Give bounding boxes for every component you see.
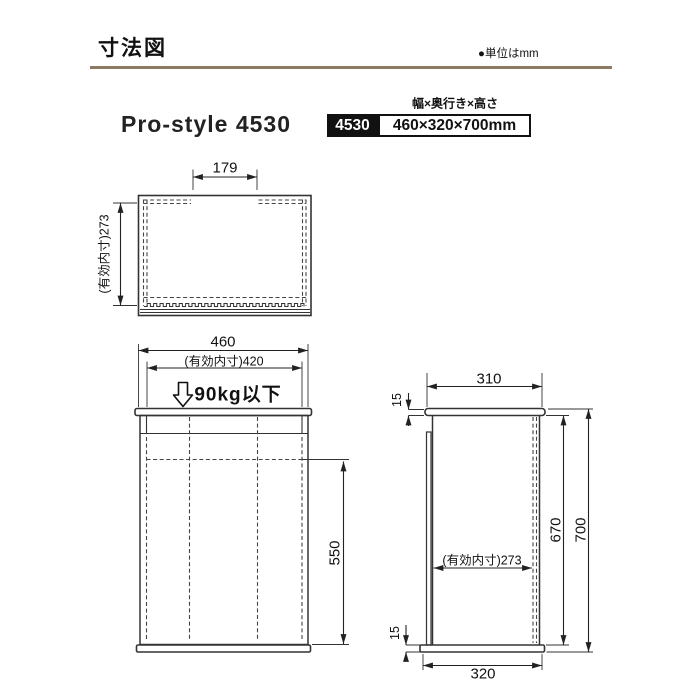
size-value: 460×320×700mm <box>378 114 531 137</box>
front-view-inner-height-label: 550 <box>327 540 344 565</box>
spec-table-header: 幅×奥行き×高さ <box>412 95 498 112</box>
front-view-inner-width-label: (有効内寸)420 <box>184 351 263 370</box>
product-name: Pro-style 4530 <box>121 111 291 138</box>
top-view-inner-depth-label: (有効内寸)273 <box>94 214 113 293</box>
front-view-load-label: 90kg以下 <box>194 380 281 407</box>
down-arrow-icon <box>174 383 193 407</box>
side-view-base-width-label: 320 <box>470 666 495 683</box>
side-view-inner-depth-label: (有効内寸)273 <box>442 550 521 569</box>
page-title: 寸法図 <box>98 32 167 62</box>
side-view-top-width-label: 310 <box>476 371 501 388</box>
top-view-opening-width-label: 179 <box>212 160 237 177</box>
model-badge: 4530 <box>327 114 378 137</box>
side-view-total-height-label: 700 <box>573 517 590 542</box>
front-view-width-label: 460 <box>210 334 235 351</box>
side-view-body-height-label: 670 <box>548 517 565 542</box>
side-view-top-thickness-label: 15 <box>390 393 404 407</box>
side-view-base-thickness-label: 15 <box>388 626 402 640</box>
dimension-linework-svg <box>0 0 700 700</box>
dimension-diagram-page: 寸法図 ●単位はmm Pro-style 4530 幅×奥行き×高さ 4530 … <box>0 0 700 700</box>
header-divider <box>90 66 612 69</box>
unit-note: ●単位はmm <box>478 45 539 61</box>
